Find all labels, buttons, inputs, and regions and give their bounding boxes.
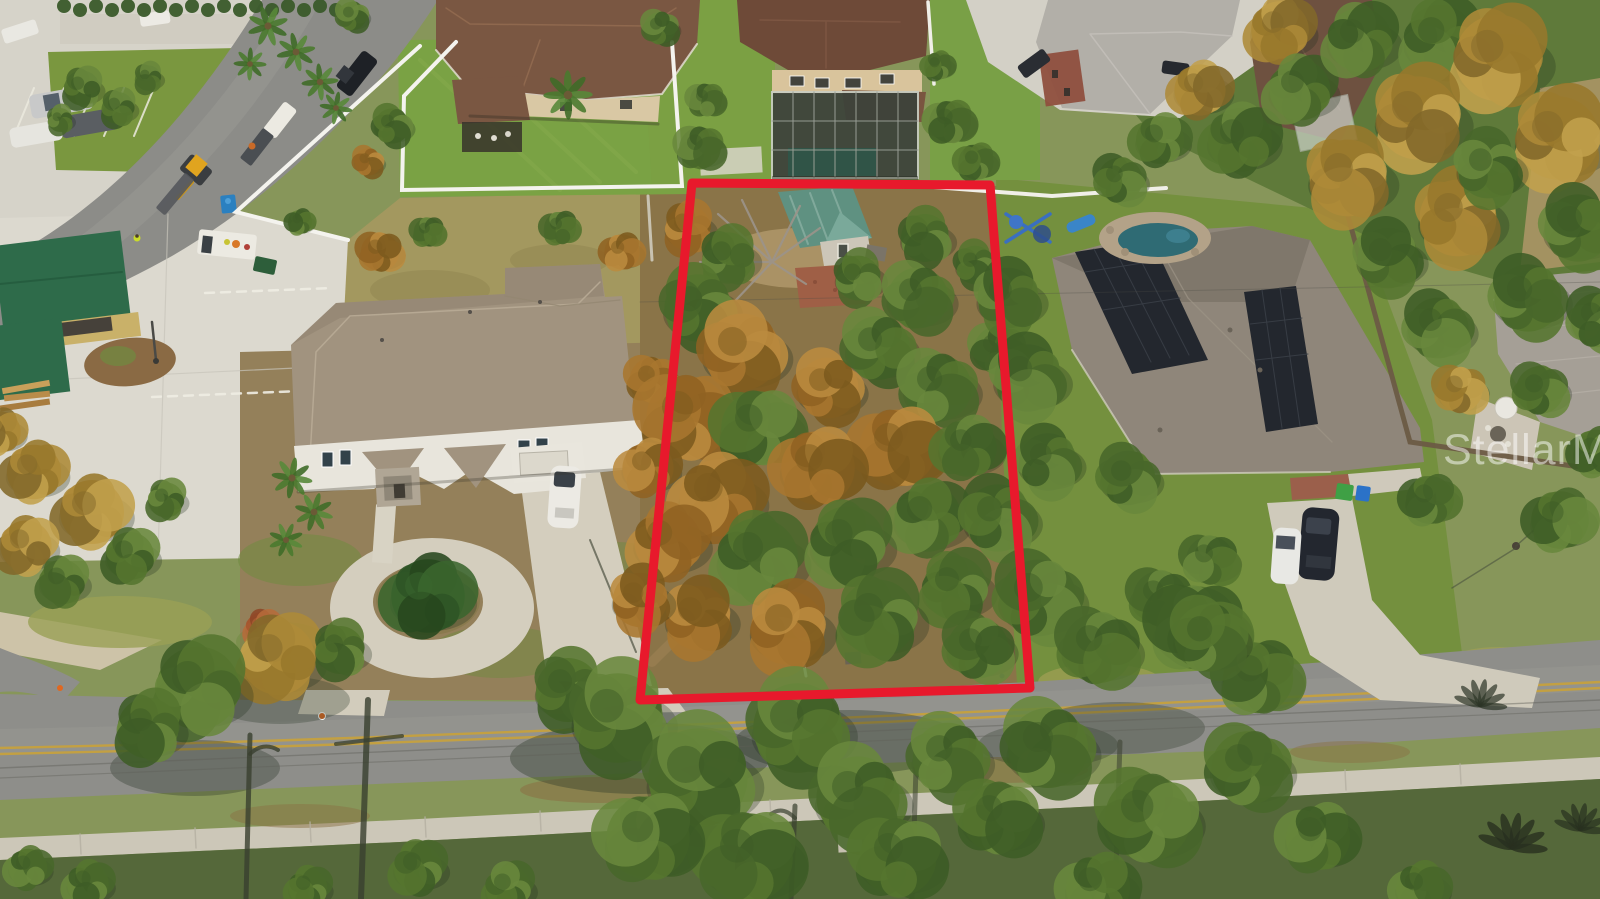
dark-suv-driveway xyxy=(1297,507,1340,582)
blue-playset xyxy=(1009,215,1023,229)
palm-tree xyxy=(543,70,593,120)
tree-canopy xyxy=(408,217,447,247)
green-trash-bin xyxy=(1335,483,1354,501)
tree-canopy xyxy=(354,232,405,272)
white-sedan-right xyxy=(1270,527,1302,585)
aerial-photo: StellarMLS xyxy=(0,0,1600,899)
tree-canopy xyxy=(684,84,727,117)
aerial-scene xyxy=(0,0,1600,899)
tree-canopy xyxy=(847,818,950,899)
tree-canopy xyxy=(687,812,809,899)
pool-water xyxy=(788,148,876,176)
